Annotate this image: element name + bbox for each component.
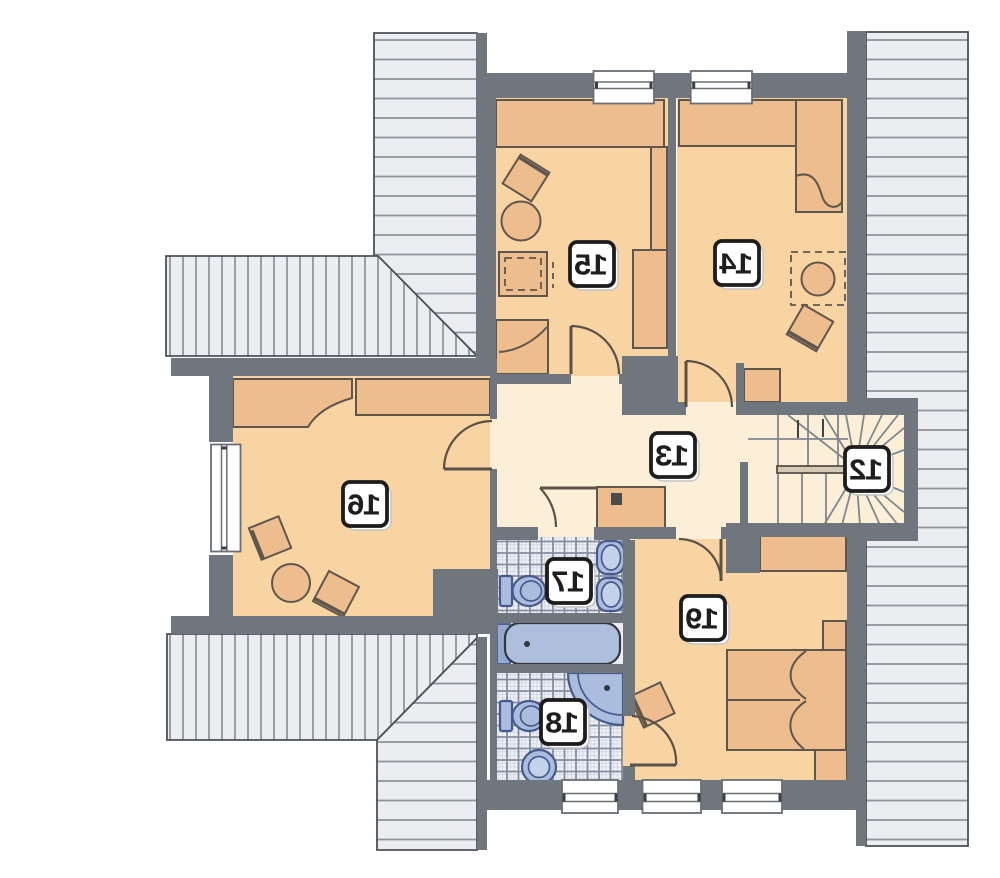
svg-text:16: 16 [348,490,381,525]
svg-text:19: 19 [686,604,719,639]
svg-text:13: 13 [655,441,689,476]
svg-text:14: 14 [719,249,753,284]
svg-text:15: 15 [575,250,608,285]
svg-text:12: 12 [850,455,883,490]
svg-text:17: 17 [552,567,585,602]
svg-text:18: 18 [546,708,579,743]
